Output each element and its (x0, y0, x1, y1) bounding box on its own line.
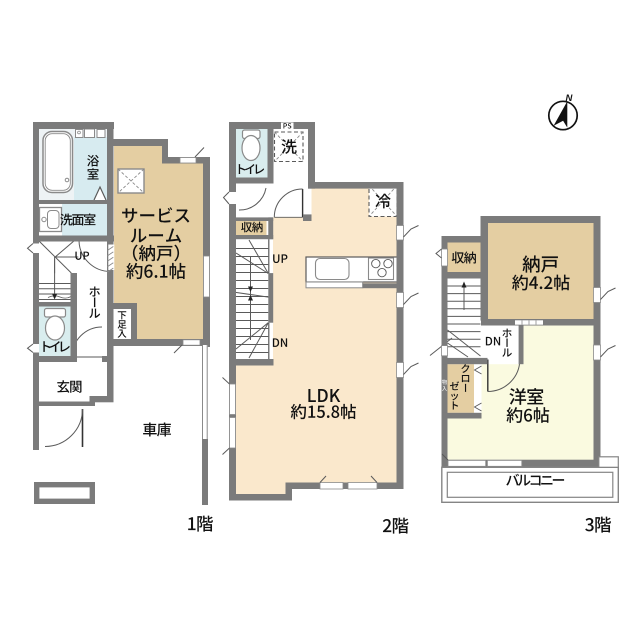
svg-text:N: N (566, 93, 574, 104)
